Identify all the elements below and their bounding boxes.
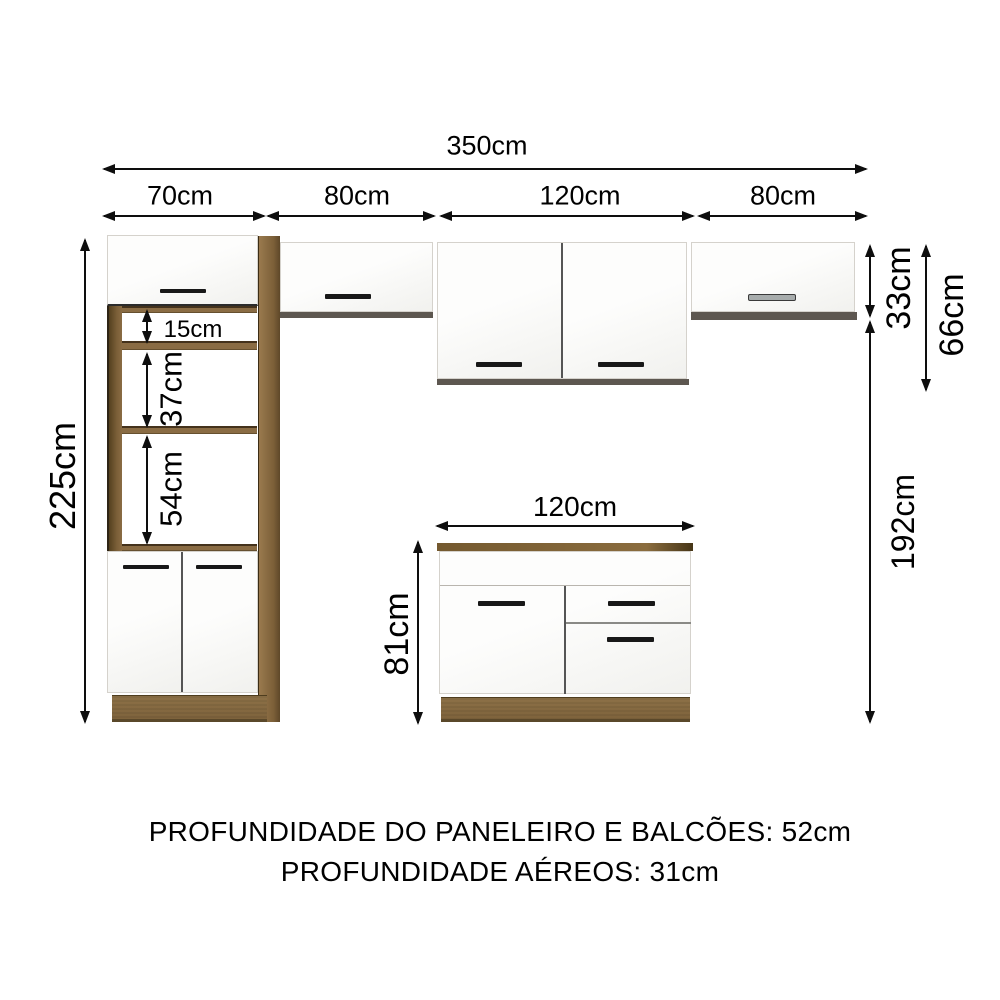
tall-cabinet-top-door-handle (160, 289, 206, 293)
gap-37-label: 37cm (156, 351, 187, 427)
depth-notes: PROFUNDIDADE DO PANELEIRO E BALCÕES: 52c… (0, 812, 1000, 892)
base-cabinet-drawer-divider (566, 622, 691, 624)
depth-note-paneleiro-balcoes: PROFUNDIDADE DO PANELEIRO E BALCÕES: 52c… (0, 812, 1000, 852)
wall-cabinet-80-right-bottom-edge (691, 312, 857, 320)
base-height-arrow (417, 542, 419, 723)
tower-height-arrow (84, 240, 86, 722)
base-cabinet-kick-plate (441, 697, 690, 722)
base-width-label: 120cm (533, 493, 617, 521)
tall-cabinet-top-door (107, 235, 258, 306)
tower-kick-plate (112, 695, 267, 722)
base-cabinet-drawer-1-handle (608, 601, 655, 606)
tower-bottom-rail (122, 544, 257, 551)
wall-cabinet-80-left-bottom-edge (280, 312, 433, 318)
wall-cabinet-120-right-handle (598, 362, 644, 367)
gap-54-label: 54cm (156, 451, 187, 527)
wall-cabinet-80-right-door (691, 242, 855, 312)
wall-cabinet-80-left-door (280, 242, 433, 312)
gap-37-arrow (146, 354, 148, 426)
tower-height-label: 225cm (45, 422, 81, 530)
wall-to-floor-arrow (869, 322, 871, 722)
wall-cabinet-120-door-right (562, 242, 687, 379)
total-width-arrow (104, 168, 866, 170)
aereo-66-arrow (925, 246, 927, 390)
total-width-label: 350cm (446, 133, 527, 160)
segment-arrow-70 (104, 215, 264, 217)
wall-cabinet-120-left-handle (476, 362, 522, 367)
segment-label-80-left: 80cm (324, 183, 390, 210)
wall-cabinet-80-left-handle (325, 294, 371, 299)
segment-label-120: 120cm (539, 183, 620, 210)
wall-cabinet-120-bottom-edge (437, 379, 689, 385)
tall-cabinet-bottom-door-left (107, 551, 183, 693)
gap-15-arrow (146, 311, 148, 342)
tower-door-divider (181, 552, 183, 692)
base-cabinet-door-handle (478, 601, 525, 606)
segment-arrow-120 (441, 215, 693, 217)
base-width-arrow (437, 525, 693, 527)
base-cabinet-drawer-2-handle (607, 637, 654, 642)
kitchen-dimensions-diagram: 350cm 70cm 80cm 120cm 80cm 225cm 15cm 37… (0, 0, 1000, 1000)
tall-cabinet-bottom-left-handle (123, 565, 169, 569)
wall-to-floor-label: 192cm (887, 474, 919, 570)
tower-side-panel (258, 236, 280, 722)
tall-cabinet-bottom-door-right (182, 551, 258, 693)
tall-cabinet-bottom-right-handle (196, 565, 242, 569)
gap-54-arrow (146, 437, 148, 543)
aereo-33-label: 33cm (882, 246, 916, 329)
wall-cabinet-120-divider (561, 243, 563, 378)
aereo-33-arrow (869, 246, 871, 316)
aereo-66-label: 66cm (935, 273, 969, 356)
gap-15-label: 15cm (164, 318, 223, 342)
segment-arrow-80-right (699, 215, 866, 217)
segment-arrow-80-left (268, 215, 434, 217)
segment-label-70: 70cm (147, 183, 213, 210)
wall-cabinet-120-door-left (437, 242, 562, 379)
wall-cabinet-80-right-handle (748, 294, 796, 301)
segment-label-80-right: 80cm (750, 183, 816, 210)
depth-note-aereos: PROFUNDIDADE AÉREOS: 31cm (0, 852, 1000, 892)
base-height-label: 81cm (380, 592, 414, 675)
base-cabinet-top-rim (437, 543, 693, 551)
base-cabinet-door-drawer-divider (564, 586, 566, 694)
tower-left-stile (107, 306, 122, 551)
